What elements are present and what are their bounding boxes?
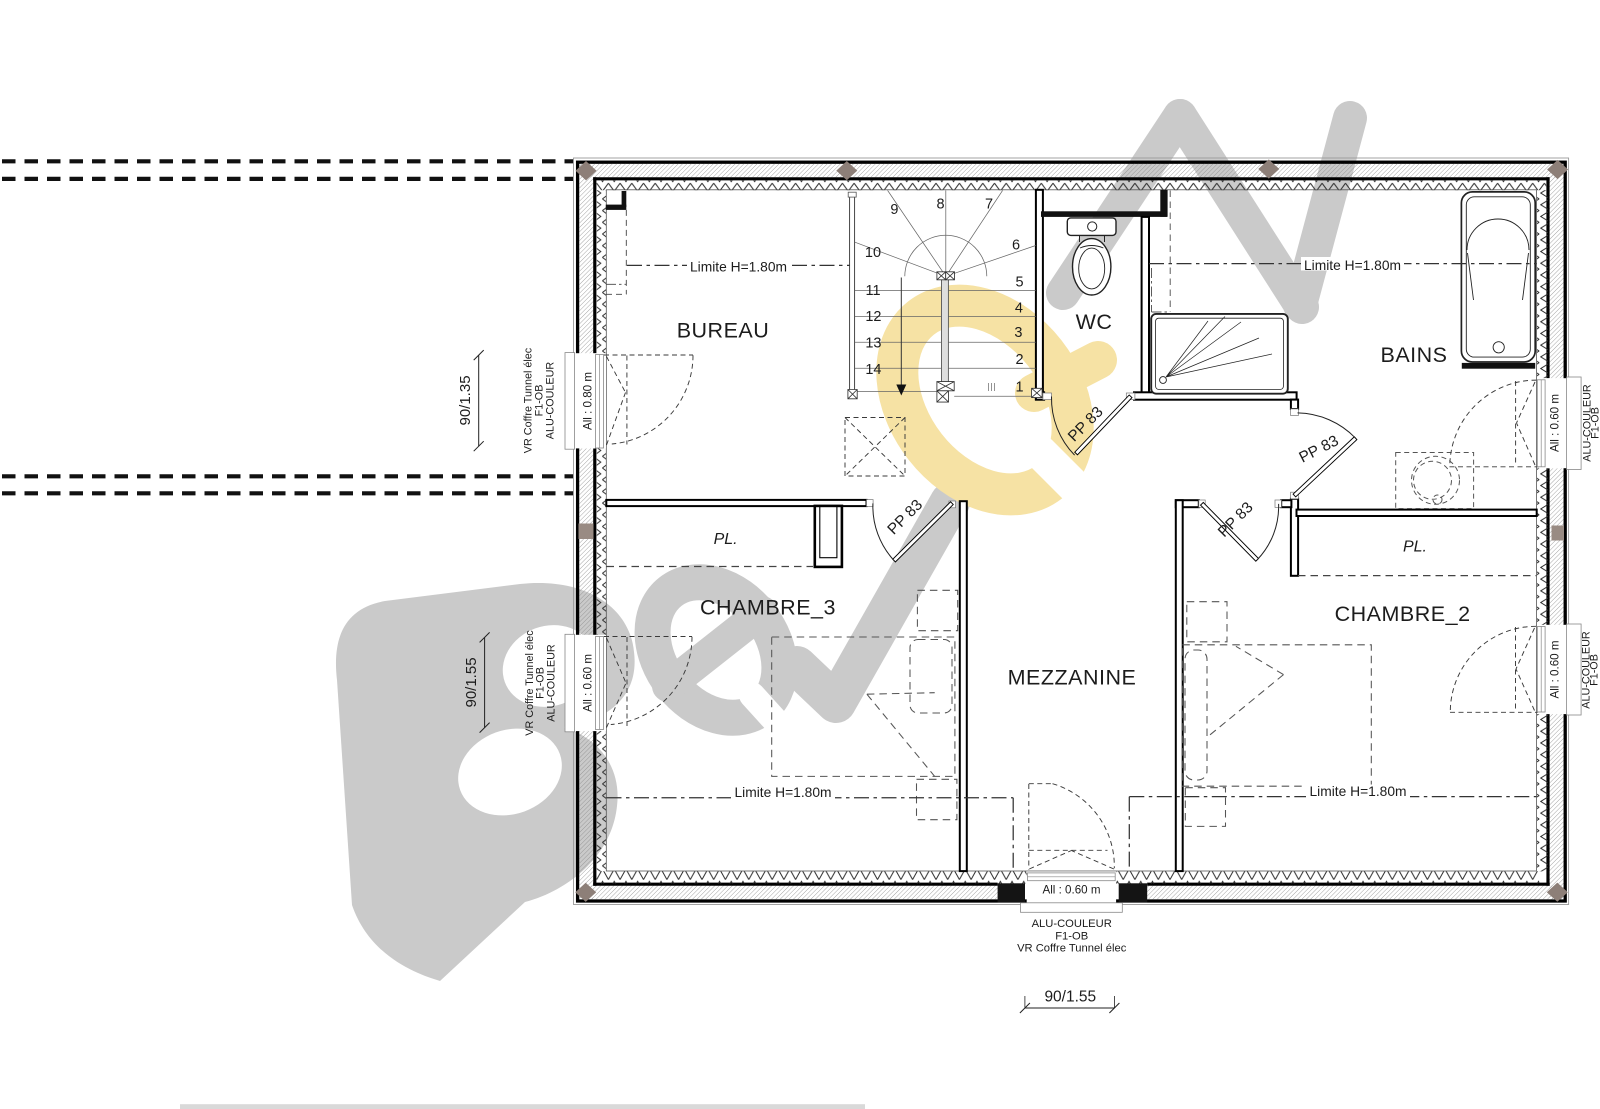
svg-text:12: 12 <box>865 309 881 325</box>
svg-text:5: 5 <box>1015 274 1023 290</box>
svg-text:F1-OB: F1-OB <box>1589 654 1600 686</box>
svg-text:Limite H=1.80m: Limite H=1.80m <box>690 260 787 275</box>
svg-text:VR Coffre Tunnel élec: VR Coffre Tunnel élec <box>1017 943 1127 955</box>
svg-text:All : 0.60 m: All : 0.60 m <box>1043 884 1101 897</box>
svg-text:All : 0.60 m: All : 0.60 m <box>1549 394 1562 452</box>
svg-text:ALU-COULEUR: ALU-COULEUR <box>546 644 558 722</box>
svg-text:9: 9 <box>890 202 898 218</box>
svg-text:All : 0.80 m: All : 0.80 m <box>582 372 595 430</box>
svg-text:11: 11 <box>865 283 880 299</box>
svg-text:ALU-COULEUR: ALU-COULEUR <box>1032 918 1112 930</box>
svg-text:6: 6 <box>1012 238 1020 254</box>
svg-text:13: 13 <box>865 335 881 351</box>
svg-text:WC: WC <box>1076 310 1113 334</box>
svg-text:CHAMBRE_3: CHAMBRE_3 <box>700 596 836 620</box>
svg-text:F1-OB: F1-OB <box>1590 407 1600 439</box>
svg-text:F1-OB: F1-OB <box>1055 931 1088 943</box>
svg-text:CHAMBRE_2: CHAMBRE_2 <box>1335 602 1471 626</box>
svg-text:Limite H=1.80m: Limite H=1.80m <box>1309 784 1406 799</box>
svg-text:PL.: PL. <box>1403 539 1427 556</box>
svg-text:10: 10 <box>865 245 881 261</box>
svg-text:7: 7 <box>985 197 993 213</box>
svg-text:90/1.55: 90/1.55 <box>463 657 480 707</box>
svg-text:90/1.55: 90/1.55 <box>1044 989 1096 1006</box>
svg-text:14: 14 <box>865 362 881 378</box>
svg-text:BAINS: BAINS <box>1380 343 1447 367</box>
svg-text:3: 3 <box>1014 325 1022 341</box>
svg-text:PL.: PL. <box>714 531 738 548</box>
svg-text:All : 0.60 m: All : 0.60 m <box>582 654 595 712</box>
svg-text:Limite H=1.80m: Limite H=1.80m <box>1304 258 1401 273</box>
svg-text:2: 2 <box>1015 352 1023 368</box>
svg-text:4: 4 <box>1015 300 1023 316</box>
svg-text:8: 8 <box>937 197 945 213</box>
svg-text:ALU-COULEUR: ALU-COULEUR <box>545 362 557 440</box>
svg-text:All : 0.60 m: All : 0.60 m <box>1549 641 1562 699</box>
svg-text:1: 1 <box>1015 379 1023 395</box>
svg-text:90/1.35: 90/1.35 <box>457 375 474 425</box>
svg-text:MEZZANINE: MEZZANINE <box>1008 666 1137 690</box>
svg-text:BUREAU: BUREAU <box>677 319 770 343</box>
svg-text:Limite H=1.80m: Limite H=1.80m <box>734 785 831 800</box>
